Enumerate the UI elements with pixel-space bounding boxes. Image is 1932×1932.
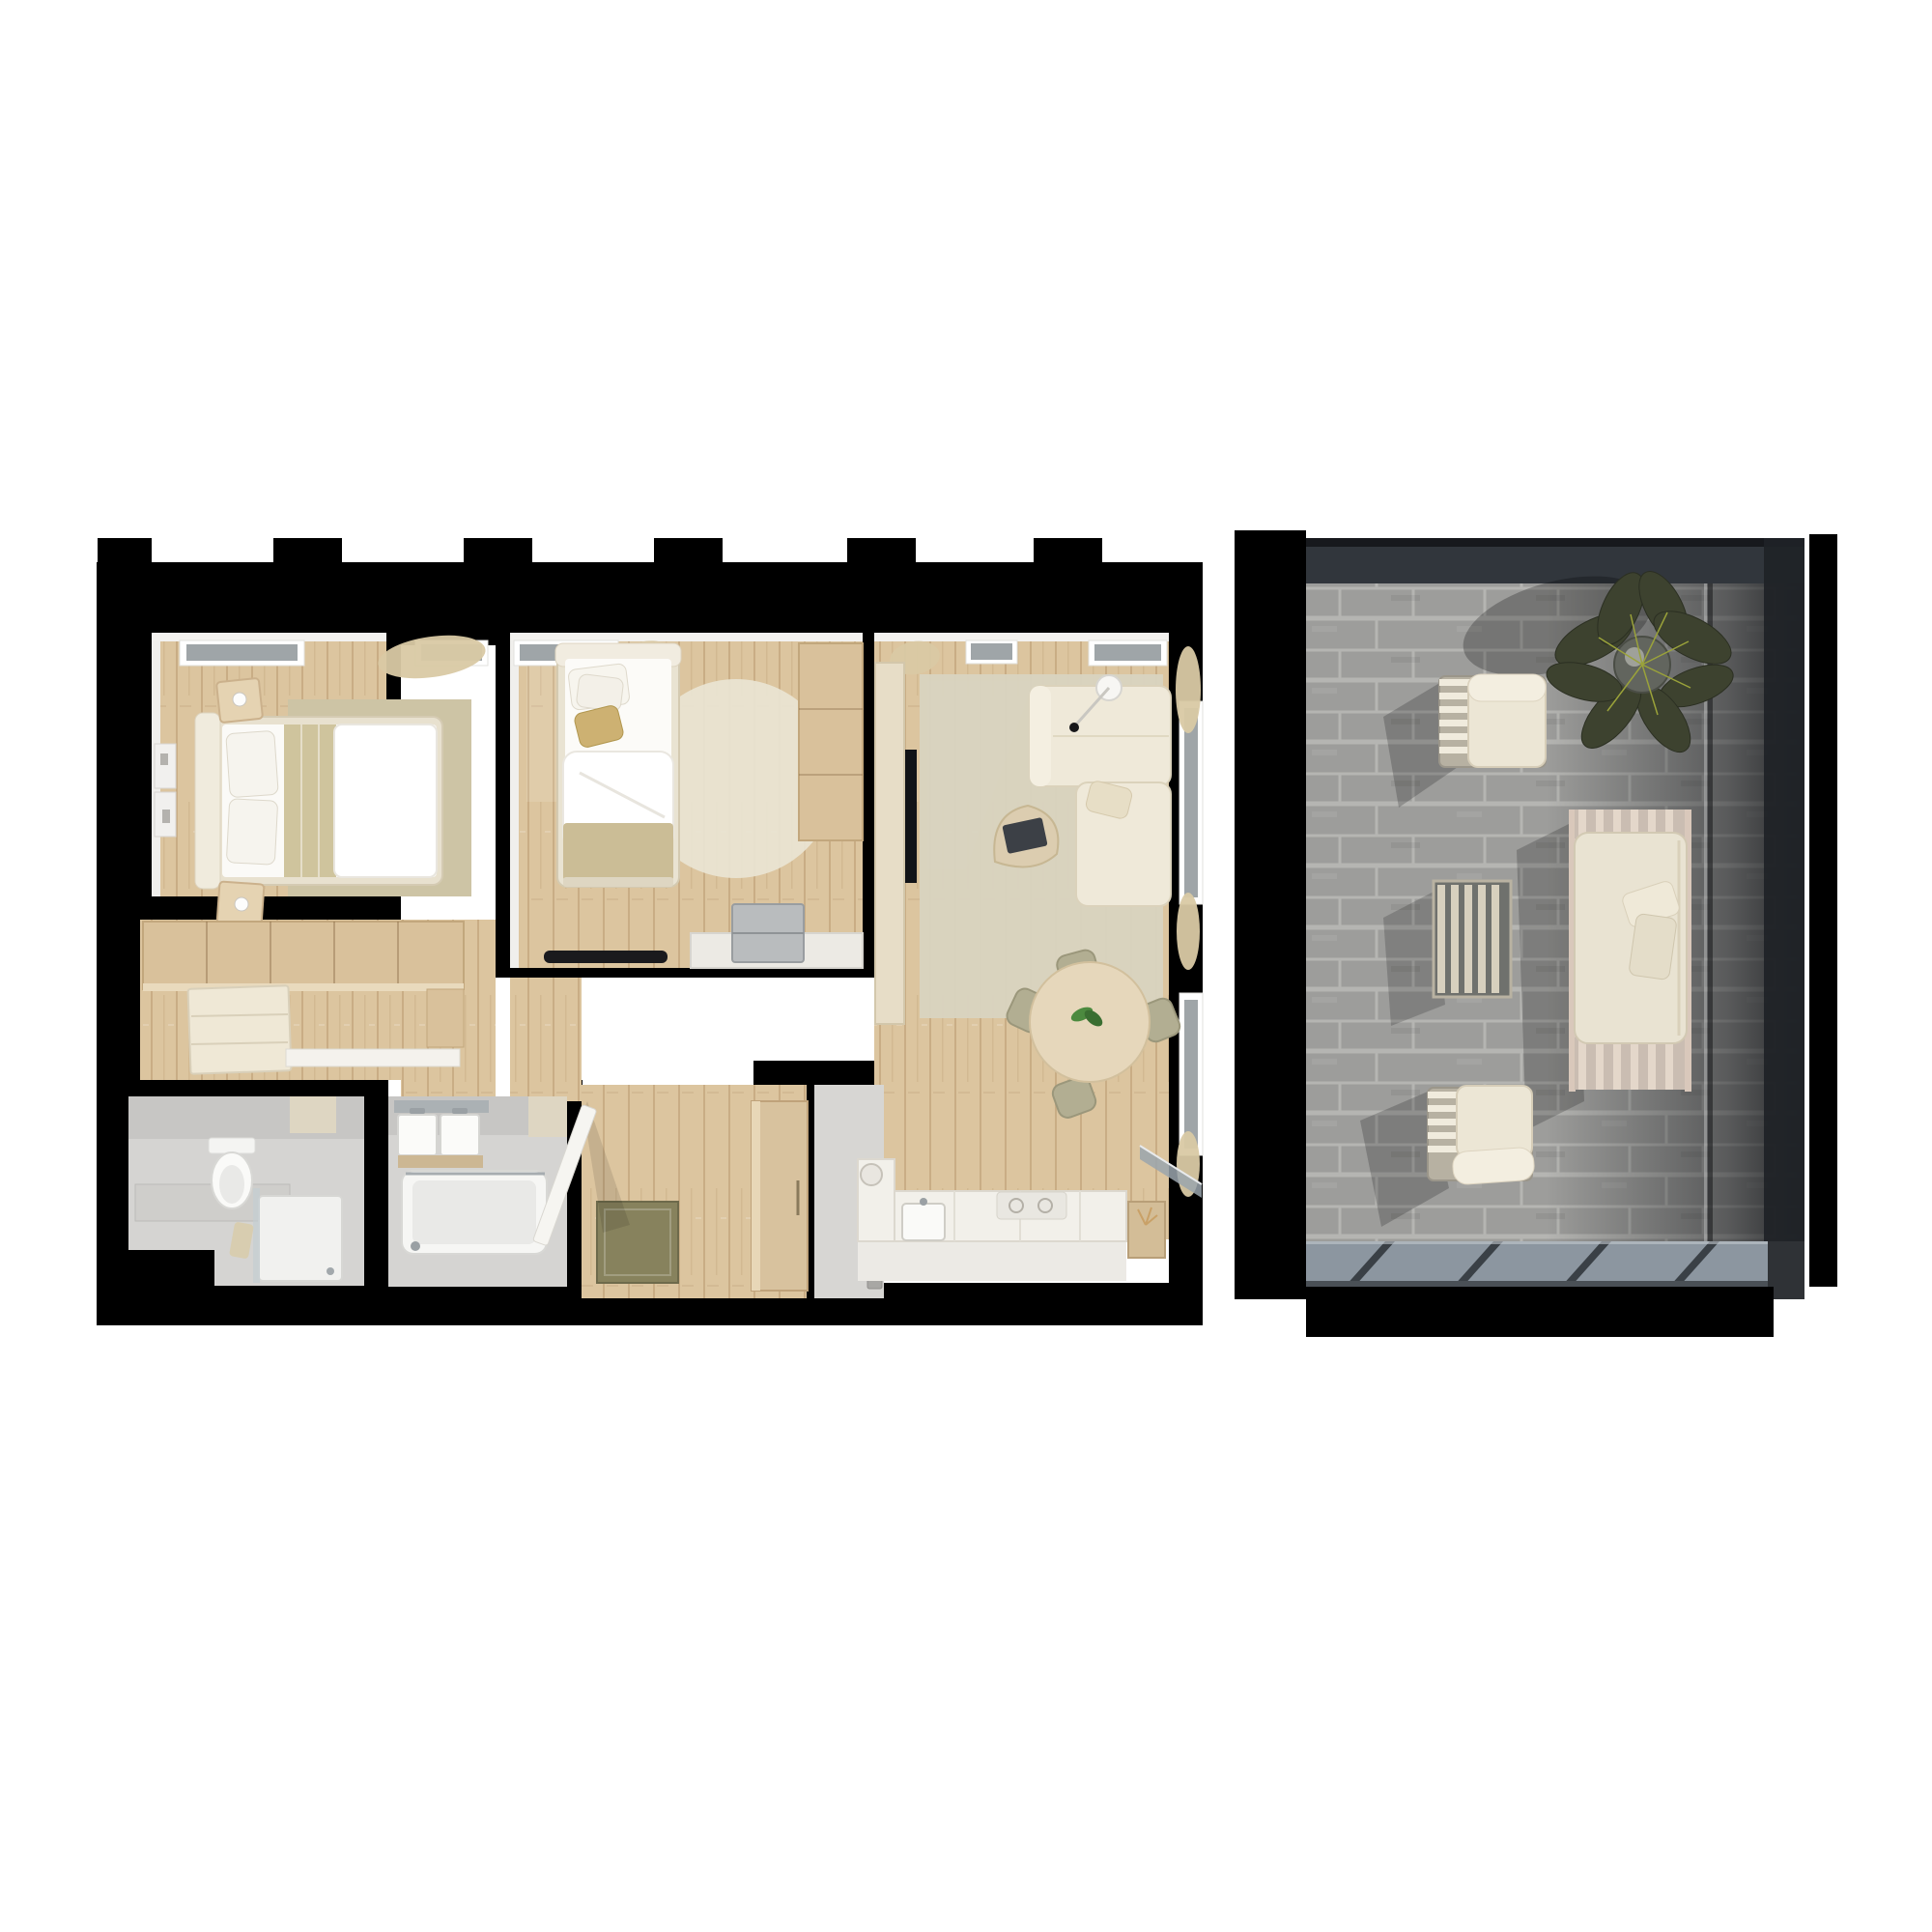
window-glass (186, 644, 298, 661)
sink-tap (410, 1108, 425, 1114)
daybed-pillow (1629, 913, 1677, 980)
desk-tray (544, 951, 668, 963)
dressing-counter (286, 1049, 460, 1066)
wall-art (155, 744, 176, 788)
daybed-slat (1578, 1037, 1586, 1090)
daybed-slat (1631, 1037, 1638, 1090)
curtain (1177, 893, 1200, 970)
curtain (1176, 646, 1201, 733)
bed1-pillow (226, 730, 278, 797)
armchair-roll (1468, 674, 1546, 701)
daybed-slat (1613, 1037, 1621, 1090)
tv-screen (905, 750, 917, 883)
wardrobe-run (143, 922, 464, 989)
toilet-seat (219, 1165, 244, 1204)
bed2-wardrobe (799, 643, 863, 840)
vanity-shelf (398, 1155, 483, 1168)
floor-lamp-base (1069, 723, 1079, 732)
terrace-left-wall (1235, 530, 1306, 1299)
toilet-tank (209, 1138, 255, 1153)
dressing-side-panel (427, 989, 464, 1047)
wall-tooth-4 (654, 538, 723, 563)
entry-cabinet-edge (752, 1101, 760, 1291)
wall-outlet (861, 1164, 882, 1185)
terrace-right-wall (1809, 534, 1837, 1287)
wall-art-motif (160, 753, 168, 765)
side-table-slat (1478, 885, 1486, 993)
window-glass (971, 643, 1012, 660)
side-table-slat (1464, 885, 1472, 993)
shower-glass (253, 1188, 260, 1283)
bed2-footboard (563, 877, 673, 887)
window-glass (1184, 708, 1198, 897)
sink-tap (452, 1108, 468, 1114)
wall-hall-top (753, 1061, 886, 1085)
kitchen-faucet (920, 1198, 927, 1206)
skylight-bottom-edge (1306, 1281, 1768, 1287)
kitchen-sink (902, 1204, 945, 1240)
wall-tooth-6 (1034, 538, 1102, 563)
sofa-armrest (1030, 686, 1051, 786)
floor-corridor-2 (510, 978, 582, 1101)
wall-tooth-5 (847, 538, 916, 563)
wall-art-motif (162, 810, 170, 823)
tv-console (875, 663, 904, 1024)
bathtub-inner (412, 1180, 536, 1244)
table-lamp (233, 693, 246, 706)
wallface-bed2-left (510, 640, 519, 968)
kitchen-counter (858, 1191, 1126, 1241)
bath2-accent-tile (528, 1096, 567, 1137)
daybed-slat (1648, 1037, 1656, 1090)
side-table-slat (1492, 885, 1499, 993)
sink (440, 1115, 479, 1155)
bed2-blanket (563, 823, 673, 881)
terrace-bottom-wall (1306, 1287, 1774, 1337)
wall-tooth-3 (464, 538, 532, 563)
kitchen-counter-front (858, 1241, 1126, 1281)
floorplan-svg (0, 0, 1932, 1932)
wall-tooth-2 (273, 538, 342, 563)
bath1-accent-tile (290, 1096, 336, 1133)
skylight-top-edge (1306, 1241, 1768, 1244)
bath2-mirror (394, 1100, 489, 1113)
window-glass (1184, 1000, 1198, 1149)
bed1-headboard (195, 713, 220, 889)
terrace-canopy (1306, 547, 1804, 583)
wall-bed2-left (496, 640, 510, 978)
shower-drain (327, 1267, 334, 1275)
daybed-slat (1665, 1037, 1673, 1090)
bed2-pillow (576, 673, 624, 711)
terrace-right-glazing (1764, 538, 1804, 1299)
armchair-cushion (1457, 1086, 1532, 1157)
drawer-unit (187, 985, 291, 1074)
side-table-slat (1437, 885, 1445, 993)
bath1-wall-notch (128, 1250, 214, 1286)
table-lamp (235, 897, 248, 911)
armchair-roll (1452, 1147, 1535, 1185)
cooktop (997, 1192, 1066, 1219)
terrace-canopy-edge (1306, 538, 1804, 547)
daybed-slat (1596, 1037, 1604, 1090)
sink (398, 1115, 437, 1155)
kitchen-side-cabinet (1128, 1202, 1165, 1258)
bed1-runner (284, 724, 336, 877)
wall-living-left (863, 640, 876, 978)
side-table-slat (1451, 885, 1459, 993)
window-glass (1094, 644, 1161, 661)
bed1-pillow (226, 799, 277, 866)
bed1-duvet (334, 724, 437, 877)
floorplan-canvas (0, 0, 1932, 1932)
wall-tooth-1 (98, 538, 152, 563)
bathtub-faucet (411, 1241, 420, 1251)
wall-bath-divider (364, 1085, 388, 1287)
